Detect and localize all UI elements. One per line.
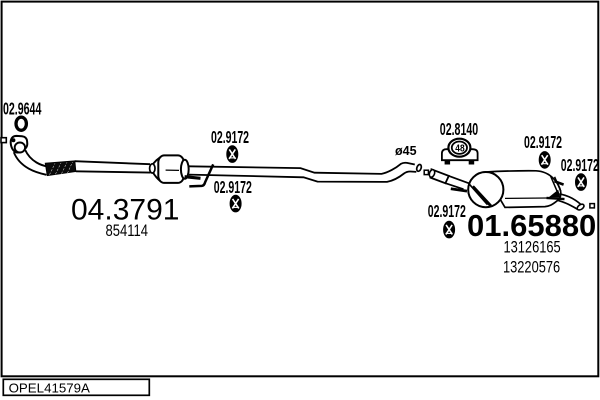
svg-text:02.9172: 02.9172 (524, 133, 562, 153)
svg-text:OPEL41579A: OPEL41579A (9, 380, 90, 395)
svg-text:13220576: 13220576 (503, 259, 560, 277)
svg-text:13126165: 13126165 (504, 239, 561, 257)
svg-text:02.9644: 02.9644 (3, 100, 42, 119)
svg-text:02.9172: 02.9172 (428, 203, 466, 223)
svg-text:02.8140: 02.8140 (440, 120, 478, 139)
svg-text:02.9172: 02.9172 (214, 179, 252, 199)
svg-text:854114: 854114 (106, 223, 149, 241)
svg-text:02.9172: 02.9172 (561, 156, 599, 176)
svg-text:48: 48 (455, 143, 464, 155)
svg-text:01.65880: 01.65880 (467, 208, 596, 243)
svg-text:02.9172: 02.9172 (211, 128, 249, 148)
svg-text:04.3791: 04.3791 (71, 194, 179, 227)
svg-text:ø45: ø45 (395, 144, 417, 158)
